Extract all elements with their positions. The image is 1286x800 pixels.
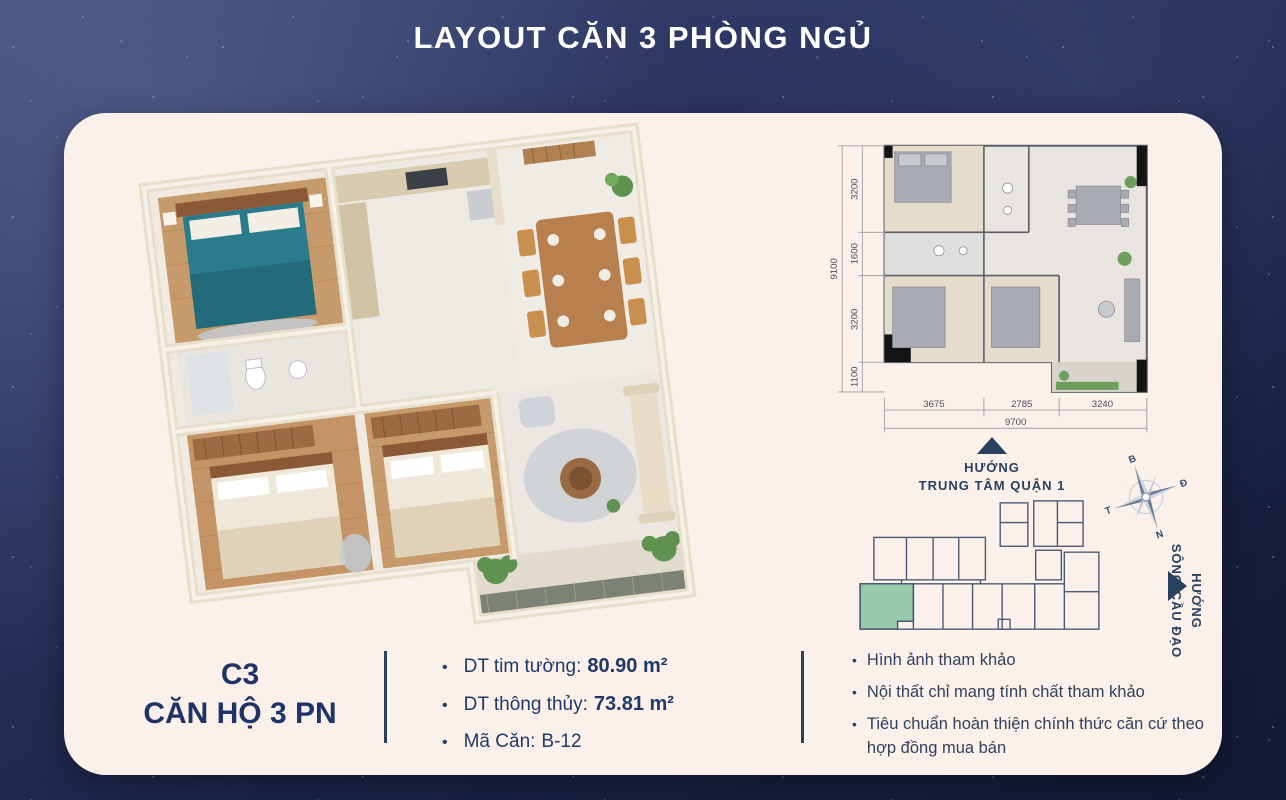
arrow-right-icon [1168, 571, 1187, 601]
info-row: C3 CĂN HỘ 3 PN • DT tim tường: 80.90 m² … [64, 643, 1222, 763]
svg-text:1600: 1600 [849, 243, 860, 264]
floorplan-2d: 3200 1600 3200 1100 9100 3675 2785 3240 … [822, 127, 1170, 443]
spec-row: • DT thông thủy: 73.81 m² [442, 693, 674, 716]
bullet-icon: • [442, 697, 448, 715]
bullet-icon: • [852, 713, 857, 761]
divider [384, 651, 387, 743]
divider [801, 651, 804, 743]
floorplan-3d-render [92, 119, 792, 685]
arrow-up-icon [977, 437, 1007, 454]
highlighted-unit [860, 584, 913, 629]
unit-name: CĂN HỘ 3 PN [100, 694, 380, 733]
layout-card: 3200 1600 3200 1100 9100 3675 2785 3240 … [64, 113, 1222, 775]
note-row: •Nội thất chỉ mang tính chất tham khảo [852, 681, 1204, 705]
svg-text:9100: 9100 [829, 258, 840, 279]
svg-text:2785: 2785 [1011, 399, 1032, 410]
unit-code: C3 [100, 655, 380, 694]
svg-text:3200: 3200 [849, 179, 860, 200]
bullet-icon: • [442, 734, 448, 752]
note-list: •Hình ảnh tham khảo •Nội thất chỉ mang t… [852, 649, 1204, 769]
svg-text:3200: 3200 [849, 309, 860, 330]
bullet-icon: • [442, 659, 448, 677]
svg-text:T: T [1104, 505, 1113, 517]
bullet-icon: • [852, 649, 857, 673]
spec-list: • DT tim tường: 80.90 m² • DT thông thủy… [442, 655, 674, 768]
compass-rose-icon: B Đ N T [1102, 453, 1190, 541]
unit-block: C3 CĂN HỘ 3 PN [100, 655, 380, 733]
spec-row: • Mã Căn: B-12 [442, 731, 674, 753]
svg-text:N: N [1155, 529, 1165, 541]
note-row: •Hình ảnh tham khảo [852, 649, 1204, 673]
note-row: •Tiêu chuẩn hoàn thiện chính thức căn cứ… [852, 713, 1204, 761]
direction-city-centre: HƯỚNG TRUNG TÂM QUẬN 1 [892, 437, 1092, 493]
svg-text:3675: 3675 [923, 399, 944, 410]
svg-text:3240: 3240 [1092, 399, 1113, 410]
building-key-plan [852, 493, 1104, 641]
svg-text:9700: 9700 [1005, 417, 1026, 428]
svg-text:1100: 1100 [849, 366, 860, 387]
spec-row: • DT tim tường: 80.90 m² [442, 655, 674, 678]
bullet-icon: • [852, 681, 857, 705]
svg-text:Đ: Đ [1179, 477, 1189, 490]
page-title: LAYOUT CĂN 3 PHÒNG NGỦ [0, 20, 1286, 56]
svg-text:B: B [1127, 453, 1137, 466]
